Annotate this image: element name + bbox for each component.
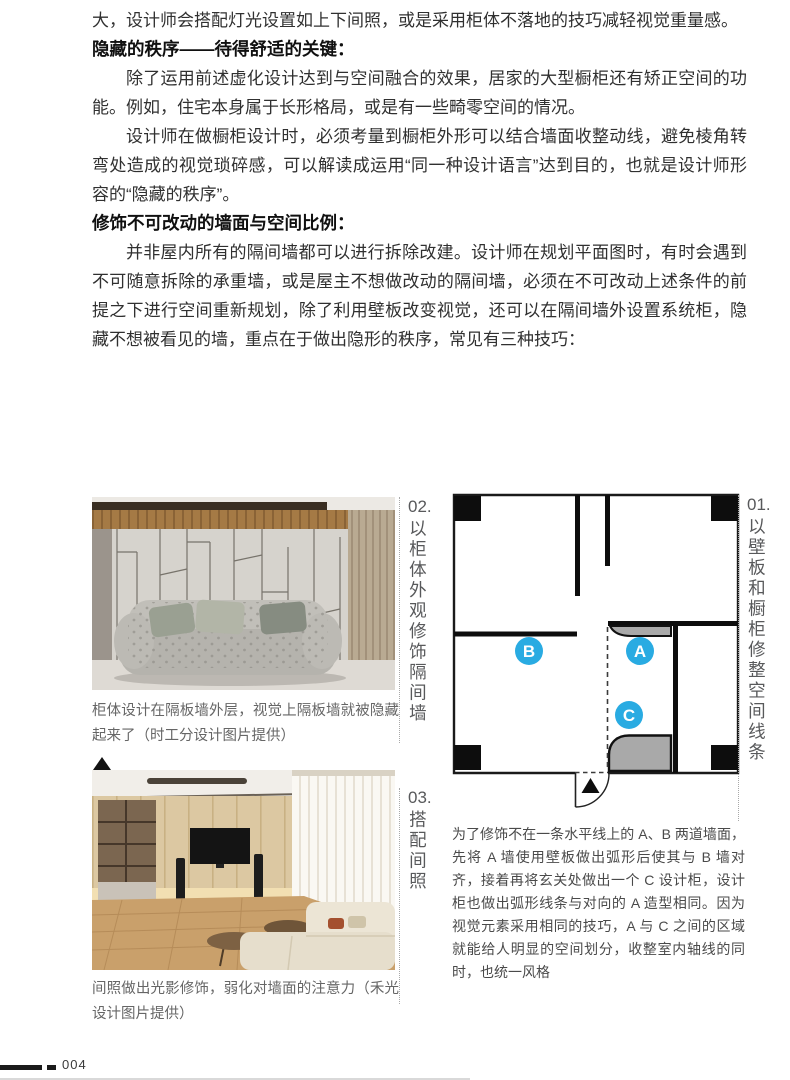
caption-photo-sofa: 柜体设计在隔板墙外层，视觉上隔板墙就被隐藏起来了（时工分设计图片提供） (92, 699, 399, 749)
article-text: 大，设计师会搭配灯光设置如上下间照，或是采用柜体不落地的技巧减轻视觉重量感。 隐… (92, 6, 747, 354)
caption-photo-lighting: 间照做出光影修饰，弱化对墙面的注意力（禾光设计图片提供） (92, 977, 399, 1027)
photo1-sofa (114, 599, 346, 686)
tip-label-02: 02. 以柜体外观修饰隔间墙 (399, 497, 432, 743)
floorplan-curved-cabinet-c (609, 736, 671, 772)
section-heading-hidden-order: 隐藏的秩序——待得舒适的关键： (92, 35, 747, 64)
tip-label-03: 03. 搭配间照 (399, 788, 432, 1004)
paragraph: 除了运用前述虚化设计达到与空间融合的效果，居家的大型橱柜还有矫正空间的功能。例如… (92, 64, 747, 122)
pageno-rule (0, 1065, 42, 1070)
photo2-shelving (98, 800, 156, 900)
book-page: 大，设计师会搭配灯光设置如上下间照，或是采用柜体不落地的技巧减轻视觉重量感。 隐… (0, 0, 790, 1080)
paragraph-continuation: 大，设计师会搭配灯光设置如上下间照，或是采用柜体不落地的技巧减轻视觉重量感。 (92, 6, 747, 35)
floorplan-curved-panel-a (610, 626, 671, 636)
badge-a-label: A (634, 642, 646, 661)
photo-tv-wall-lighting (92, 770, 395, 970)
pageno-dash (47, 1065, 56, 1070)
page-number: 004 (62, 1057, 87, 1072)
photo2-tv (190, 828, 250, 868)
photo1-doorway (92, 529, 112, 660)
badge-c-label: C (623, 706, 635, 725)
tip-label-01: 01. 以壁板和橱柜修整空间线条 (738, 495, 771, 821)
tip-number: 01. (747, 495, 771, 515)
tip-text: 以壁板和橱柜修整空间线条 (747, 517, 765, 763)
photo1-curtains (348, 510, 395, 662)
entrance-arrow-icon (582, 778, 600, 793)
badge-b-label: B (523, 642, 535, 661)
paragraph: 并非屋内所有的隔间墙都可以进行拆除改建。设计师在规划平面图时，有时会遇到不可随意… (92, 238, 747, 354)
photo1-ceiling-recess (92, 502, 327, 510)
tip-text: 以柜体外观修饰隔间墙 (408, 519, 426, 724)
caption-floorplan: 为了修饰不在一条水平线上的 A、B 两道墙面，先将 A 墙使用壁板做出弧形后使其… (452, 823, 745, 984)
floorplan-diagram: B A C (452, 493, 740, 815)
tip-number: 03. (408, 788, 432, 808)
tip-number: 02. (408, 497, 432, 517)
photo2-ceiling-recess (147, 778, 247, 784)
section-heading-fixed-walls: 修饰不可改动的墙面与空间比例： (92, 209, 747, 238)
paragraph: 设计师在做橱柜设计时，必须考量到橱柜外形可以结合墙面收整动线，避免棱角转弯处造成… (92, 122, 747, 209)
photo-sofa-panel-wall (92, 497, 395, 690)
entrance-arrow-icon (93, 757, 111, 770)
tip-text: 搭配间照 (408, 810, 426, 892)
